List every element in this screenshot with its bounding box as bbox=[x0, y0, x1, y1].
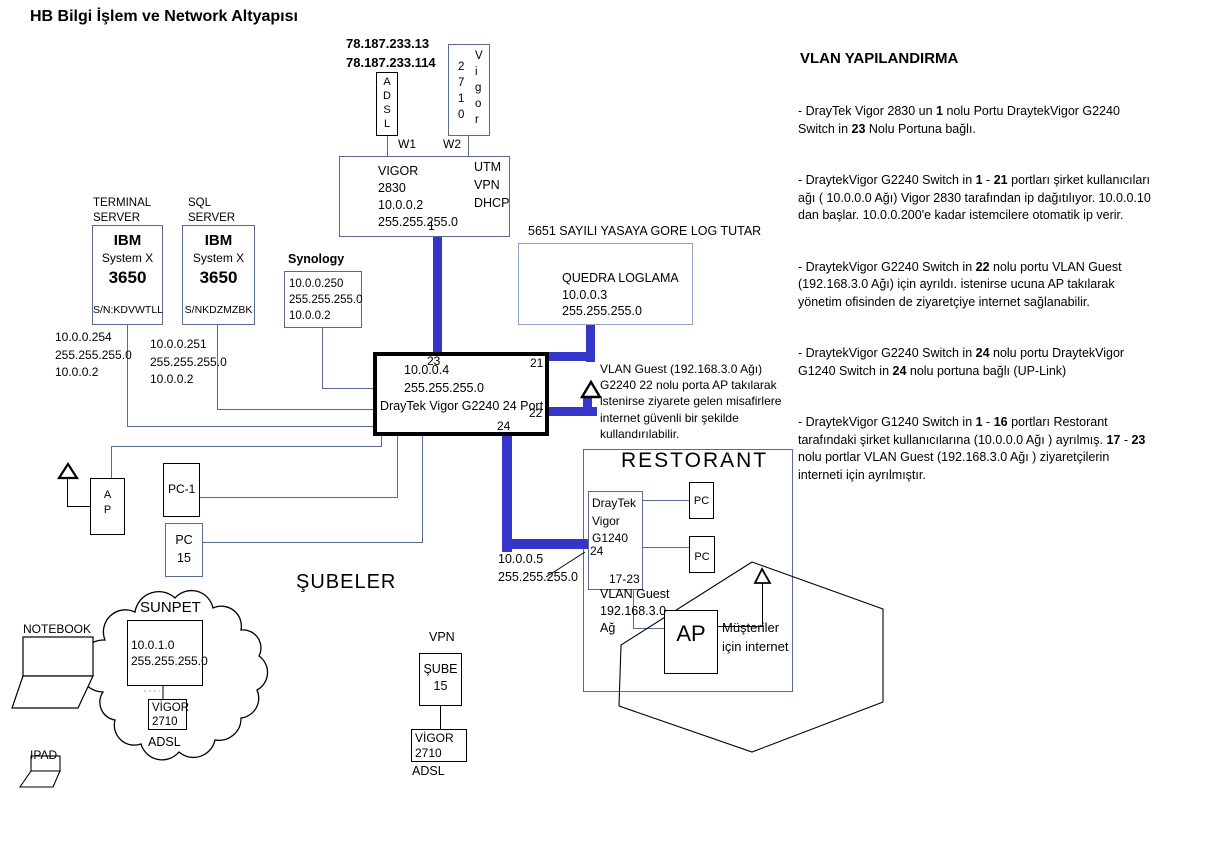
restorant-up-arrow-icon bbox=[755, 569, 770, 583]
restorant-pc-bottom-box: PC bbox=[689, 536, 715, 573]
vlan-panel-paragraphs: - DrayTek Vigor 2830 un 1 nolu Portu Dra… bbox=[798, 86, 1200, 518]
port22-up-arrow-icon bbox=[582, 382, 600, 397]
vlan-guest-note: VLAN Guest (192.168.3.0 Ağı) G2240 22 no… bbox=[600, 361, 781, 442]
vlan-paragraph-2: - DraytekVigor G2240 Switch in 1 - 21 po… bbox=[798, 172, 1200, 225]
pc15-box: PC 15 bbox=[165, 523, 203, 577]
office-ap-up-arrow-icon bbox=[59, 464, 77, 478]
vlan-panel-heading: VLAN YAPILANDIRMA bbox=[800, 50, 958, 67]
branch-adsl-label: ADSL bbox=[412, 763, 445, 780]
network-diagram-canvas: { "title": "HB Bilgi İşlem ve Network Al… bbox=[0, 0, 1215, 864]
synology-label: Synology bbox=[288, 251, 344, 268]
sql-server-box: IBM System X 3650 S/NKDZMZBK bbox=[182, 225, 255, 325]
sube-15-label: ŞUBE 15 bbox=[420, 661, 461, 695]
vlan-paragraph-5: - DraytekVigor G1240 Switch in 1 - 16 po… bbox=[798, 414, 1200, 484]
switch-port-24: 24 bbox=[497, 418, 510, 435]
restorant-pc-top-box: PC bbox=[689, 482, 714, 519]
sql-server-series: System X bbox=[183, 250, 254, 267]
pc1-label: PC-1 bbox=[168, 481, 195, 498]
synology-info: 10.0.0.250 255.255.255.0 10.0.0.2 bbox=[289, 276, 363, 324]
page-title: HB Bilgi İşlem ve Network Altyapısı bbox=[30, 8, 298, 25]
restorant-vlan-guest-label: VLAN Guest 192.168.3.0 Ağ bbox=[600, 586, 669, 637]
quedra-logging-info: QUEDRA LOGLAMA 10.0.0.3 255.255.255.0 bbox=[562, 270, 679, 320]
vigor-2830-port-1: 1 bbox=[428, 218, 435, 235]
switch-port-23: 23 bbox=[427, 353, 440, 370]
adsl-modem-box: A D S L bbox=[376, 72, 398, 136]
sql-server-model: 3650 bbox=[183, 269, 254, 286]
vpn-label: VPN bbox=[429, 629, 455, 646]
sql-server-label: SQL SERVER bbox=[188, 196, 235, 226]
sunpet-network-info: 10.0.1.0 255.255.255.0 bbox=[131, 637, 208, 669]
office-ap-box: A P bbox=[90, 478, 125, 535]
vigor-2710-wan-box: 2 7 1 0 V i g o r bbox=[448, 44, 490, 136]
terminal-server-box: IBM System X 3650 S/N:KDVWTLL bbox=[92, 225, 163, 325]
sunpet-adsl-label: ADSL bbox=[148, 734, 181, 751]
terminal-server-serial: S/N:KDVWTLL bbox=[93, 302, 162, 319]
switch-g2240-ips: 10.0.0.4 255.255.255.0 bbox=[404, 362, 484, 397]
wan1-label: W1 bbox=[398, 136, 416, 153]
switch-g1240-name: DrayTek Vigor G1240 bbox=[592, 495, 636, 548]
restorant-pc-top-label: PC bbox=[690, 493, 713, 510]
restorant-title: RESTORANT bbox=[621, 452, 768, 469]
pc15-label: PC 15 bbox=[166, 531, 202, 567]
restorant-ap-label: AP bbox=[665, 625, 717, 642]
switch-port-22: 22 bbox=[529, 405, 542, 422]
g1240-port-24: 24 bbox=[590, 543, 603, 560]
ipad-base-icon bbox=[20, 771, 60, 787]
terminal-server-ips: 10.0.0.254 255.255.255.0 10.0.0.2 bbox=[55, 329, 132, 382]
wan2-label: W2 bbox=[443, 136, 461, 153]
restorant-ap-box: AP bbox=[664, 610, 718, 674]
subeler-label: ŞUBELER bbox=[296, 574, 396, 591]
law-5651-note: 5651 SAYILI YASAYA GORE LOG TUTAR bbox=[528, 223, 761, 240]
office-ap-label: A P bbox=[91, 488, 124, 518]
branch-vigor-2710-label: VİGOR 2710 bbox=[415, 731, 454, 761]
sql-server-brand: IBM bbox=[183, 232, 254, 249]
vlan-paragraph-3: - DraytekVigor G2240 Switch in 22 nolu p… bbox=[798, 259, 1200, 312]
sql-server-ips: 10.0.0.251 255.255.255.0 10.0.0.2 bbox=[150, 336, 227, 389]
adsl-modem-label: A D S L bbox=[377, 75, 397, 131]
terminal-server-brand: IBM bbox=[93, 232, 162, 249]
terminal-server-series: System X bbox=[93, 250, 162, 267]
sql-server-serial: S/NKDZMZBK bbox=[183, 302, 254, 319]
uplink-ips: 10.0.0.5 255.255.255.0 bbox=[498, 551, 578, 586]
switch-g2240-name: DrayTek Vigor G2240 24 Port bbox=[380, 398, 543, 415]
customers-internet-note: Müşteriler için internet bbox=[722, 618, 788, 656]
restorant-pc-bottom-label: PC bbox=[690, 549, 714, 566]
vlan-paragraph-4: - DraytekVigor G2240 Switch in 24 nolu p… bbox=[798, 345, 1200, 380]
pc1-box: PC-1 bbox=[163, 463, 200, 517]
vigor-2830-features: UTM VPN DHCP bbox=[474, 158, 509, 212]
notebook-label: NOTEBOOK bbox=[23, 621, 91, 638]
wan-public-ips: 78.187.233.13 78.187.233.114 bbox=[346, 34, 436, 72]
vigor-2710-wan-digits: 2 7 1 0 bbox=[458, 59, 464, 123]
sunpet-name: SUNPET bbox=[140, 599, 201, 616]
notebook-keyboard-icon bbox=[12, 676, 93, 708]
ipad-label: IPAD bbox=[30, 747, 57, 764]
terminal-server-label: TERMINAL SERVER bbox=[93, 196, 151, 226]
switch-port-21: 21 bbox=[530, 355, 543, 372]
vigor-2830-info: VIGOR 2830 10.0.0.2 255.255.255.0 bbox=[378, 163, 458, 231]
vlan-paragraph-1: - DrayTek Vigor 2830 un 1 nolu Portu Dra… bbox=[798, 103, 1200, 138]
vigor-2710-wan-brand: V i g o r bbox=[475, 48, 483, 128]
sube-15-box: ŞUBE 15 bbox=[419, 653, 462, 706]
terminal-server-model: 3650 bbox=[93, 269, 162, 286]
sunpet-vigor-2710-label: VİGOR 2710 bbox=[152, 701, 189, 729]
notebook-screen-icon bbox=[23, 637, 93, 676]
